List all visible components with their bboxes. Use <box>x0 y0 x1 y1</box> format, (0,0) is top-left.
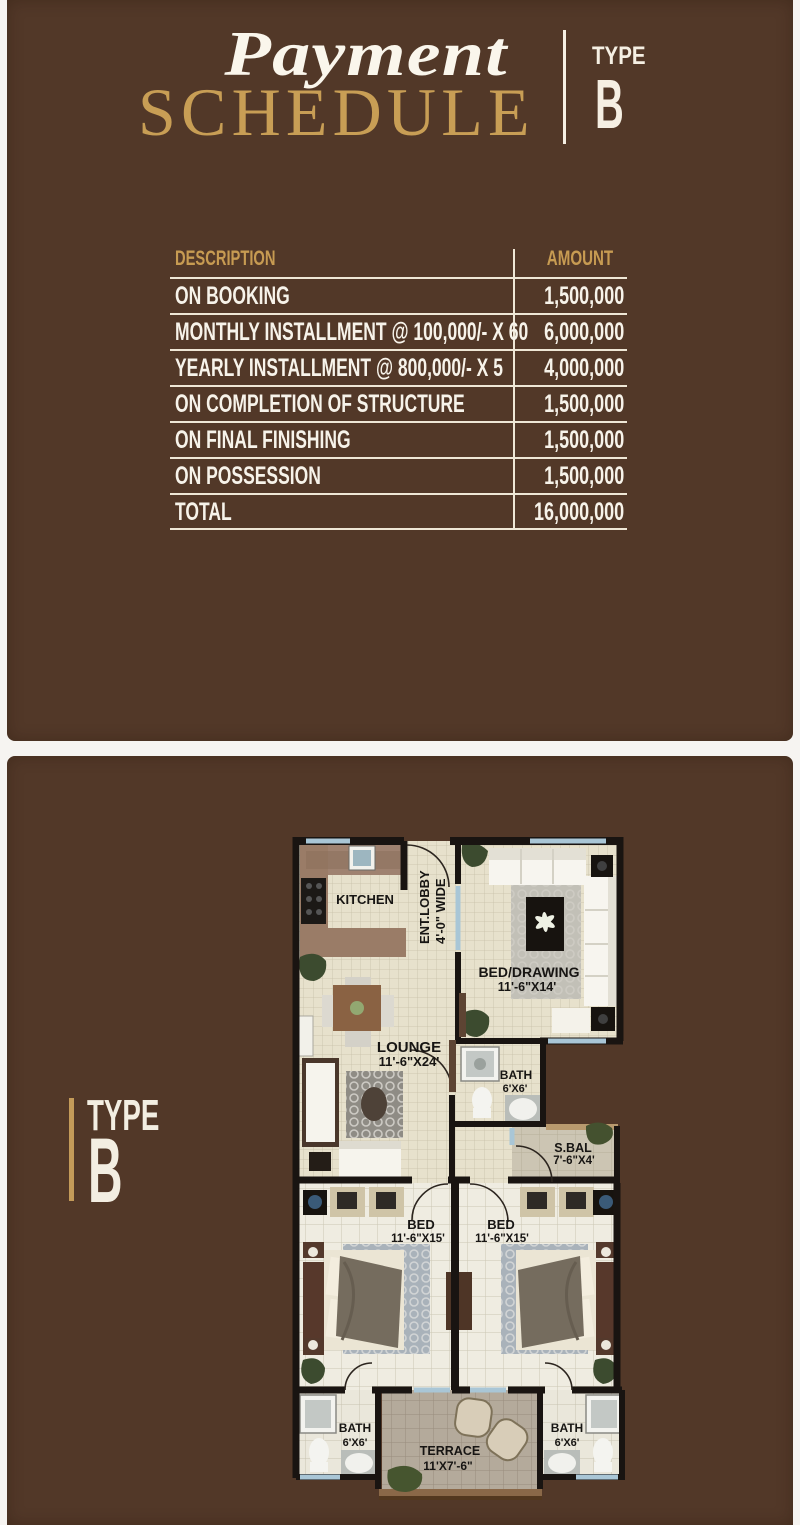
svg-text:BATH: BATH <box>339 1421 371 1435</box>
svg-text:7'-6"X4': 7'-6"X4' <box>553 1155 595 1167</box>
svg-text:BED: BED <box>407 1217 434 1232</box>
svg-text:6'X6': 6'X6' <box>503 1083 528 1095</box>
svg-text:6'X6': 6'X6' <box>555 1437 580 1449</box>
svg-text:TERRACE: TERRACE <box>420 1444 480 1458</box>
svg-text:S.BAL: S.BAL <box>554 1141 592 1155</box>
svg-text:6'X6': 6'X6' <box>343 1437 368 1449</box>
svg-text:ENT.LOBBY: ENT.LOBBY <box>417 870 432 944</box>
svg-text:4'-0" WIDE: 4'-0" WIDE <box>433 878 448 944</box>
svg-text:11'-6"X15': 11'-6"X15' <box>391 1233 445 1245</box>
svg-text:BED/DRAWING: BED/DRAWING <box>478 964 579 980</box>
svg-text:11'-6"X14': 11'-6"X14' <box>498 980 556 994</box>
svg-text:BATH: BATH <box>500 1068 532 1082</box>
svg-text:BED: BED <box>487 1217 514 1232</box>
svg-text:11'X7'-6": 11'X7'-6" <box>423 1459 472 1473</box>
svg-text:KITCHEN: KITCHEN <box>336 892 394 907</box>
svg-text:11'-6"X24': 11'-6"X24' <box>379 1054 440 1069</box>
svg-text:11'-6"X15': 11'-6"X15' <box>475 1233 529 1245</box>
svg-text:BATH: BATH <box>551 1421 583 1435</box>
